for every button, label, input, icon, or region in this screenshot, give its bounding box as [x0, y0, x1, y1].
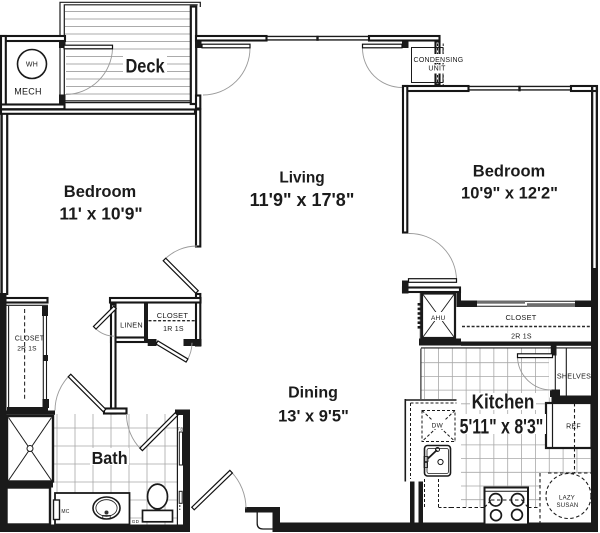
svg-text:Bath: Bath [92, 448, 128, 468]
svg-text:LAZY: LAZY [559, 496, 575, 502]
svg-text:2R 1S: 2R 1S [17, 346, 37, 353]
svg-text:LINEN: LINEN [120, 321, 143, 330]
svg-text:Living: Living [279, 170, 324, 187]
svg-text:10'9" x 12'2": 10'9" x 12'2" [461, 184, 558, 202]
svg-text:CLOSET: CLOSET [15, 335, 45, 342]
svg-text:11' x 10'9": 11' x 10'9" [59, 203, 142, 223]
svg-text:1R 1S: 1R 1S [163, 326, 184, 333]
svg-text:WH: WH [26, 62, 38, 69]
svg-text:AHU: AHU [431, 315, 446, 322]
svg-text:MECH: MECH [14, 87, 42, 97]
svg-text:CLOSET: CLOSET [157, 311, 189, 320]
svg-text:UNIT: UNIT [428, 66, 446, 73]
svg-text:Bedroom: Bedroom [64, 183, 136, 201]
svg-text:Bedroom: Bedroom [473, 163, 545, 181]
svg-text:Deck: Deck [125, 55, 164, 76]
svg-text:CONDENSING: CONDENSING [414, 57, 464, 64]
svg-text:TB: TB [177, 427, 183, 432]
svg-text:11'9" x 17'8": 11'9" x 17'8" [250, 190, 355, 210]
svg-text:5'11" x 8'3": 5'11" x 8'3" [460, 415, 544, 439]
svg-text:CLOSET: CLOSET [505, 313, 536, 322]
svg-text:SUSAN: SUSAN [557, 503, 579, 509]
svg-text:DW: DW [432, 423, 444, 430]
svg-text:2R 1S: 2R 1S [511, 334, 532, 341]
svg-text:13' x 9'5": 13' x 9'5" [278, 408, 349, 426]
svg-text:Dining: Dining [288, 385, 338, 402]
svg-text:GD: GD [132, 519, 140, 524]
svg-text:SHELVES: SHELVES [557, 372, 591, 381]
svg-text:MC: MC [61, 509, 69, 515]
svg-text:REF: REF [566, 424, 581, 431]
svg-text:Kitchen: Kitchen [472, 390, 535, 413]
